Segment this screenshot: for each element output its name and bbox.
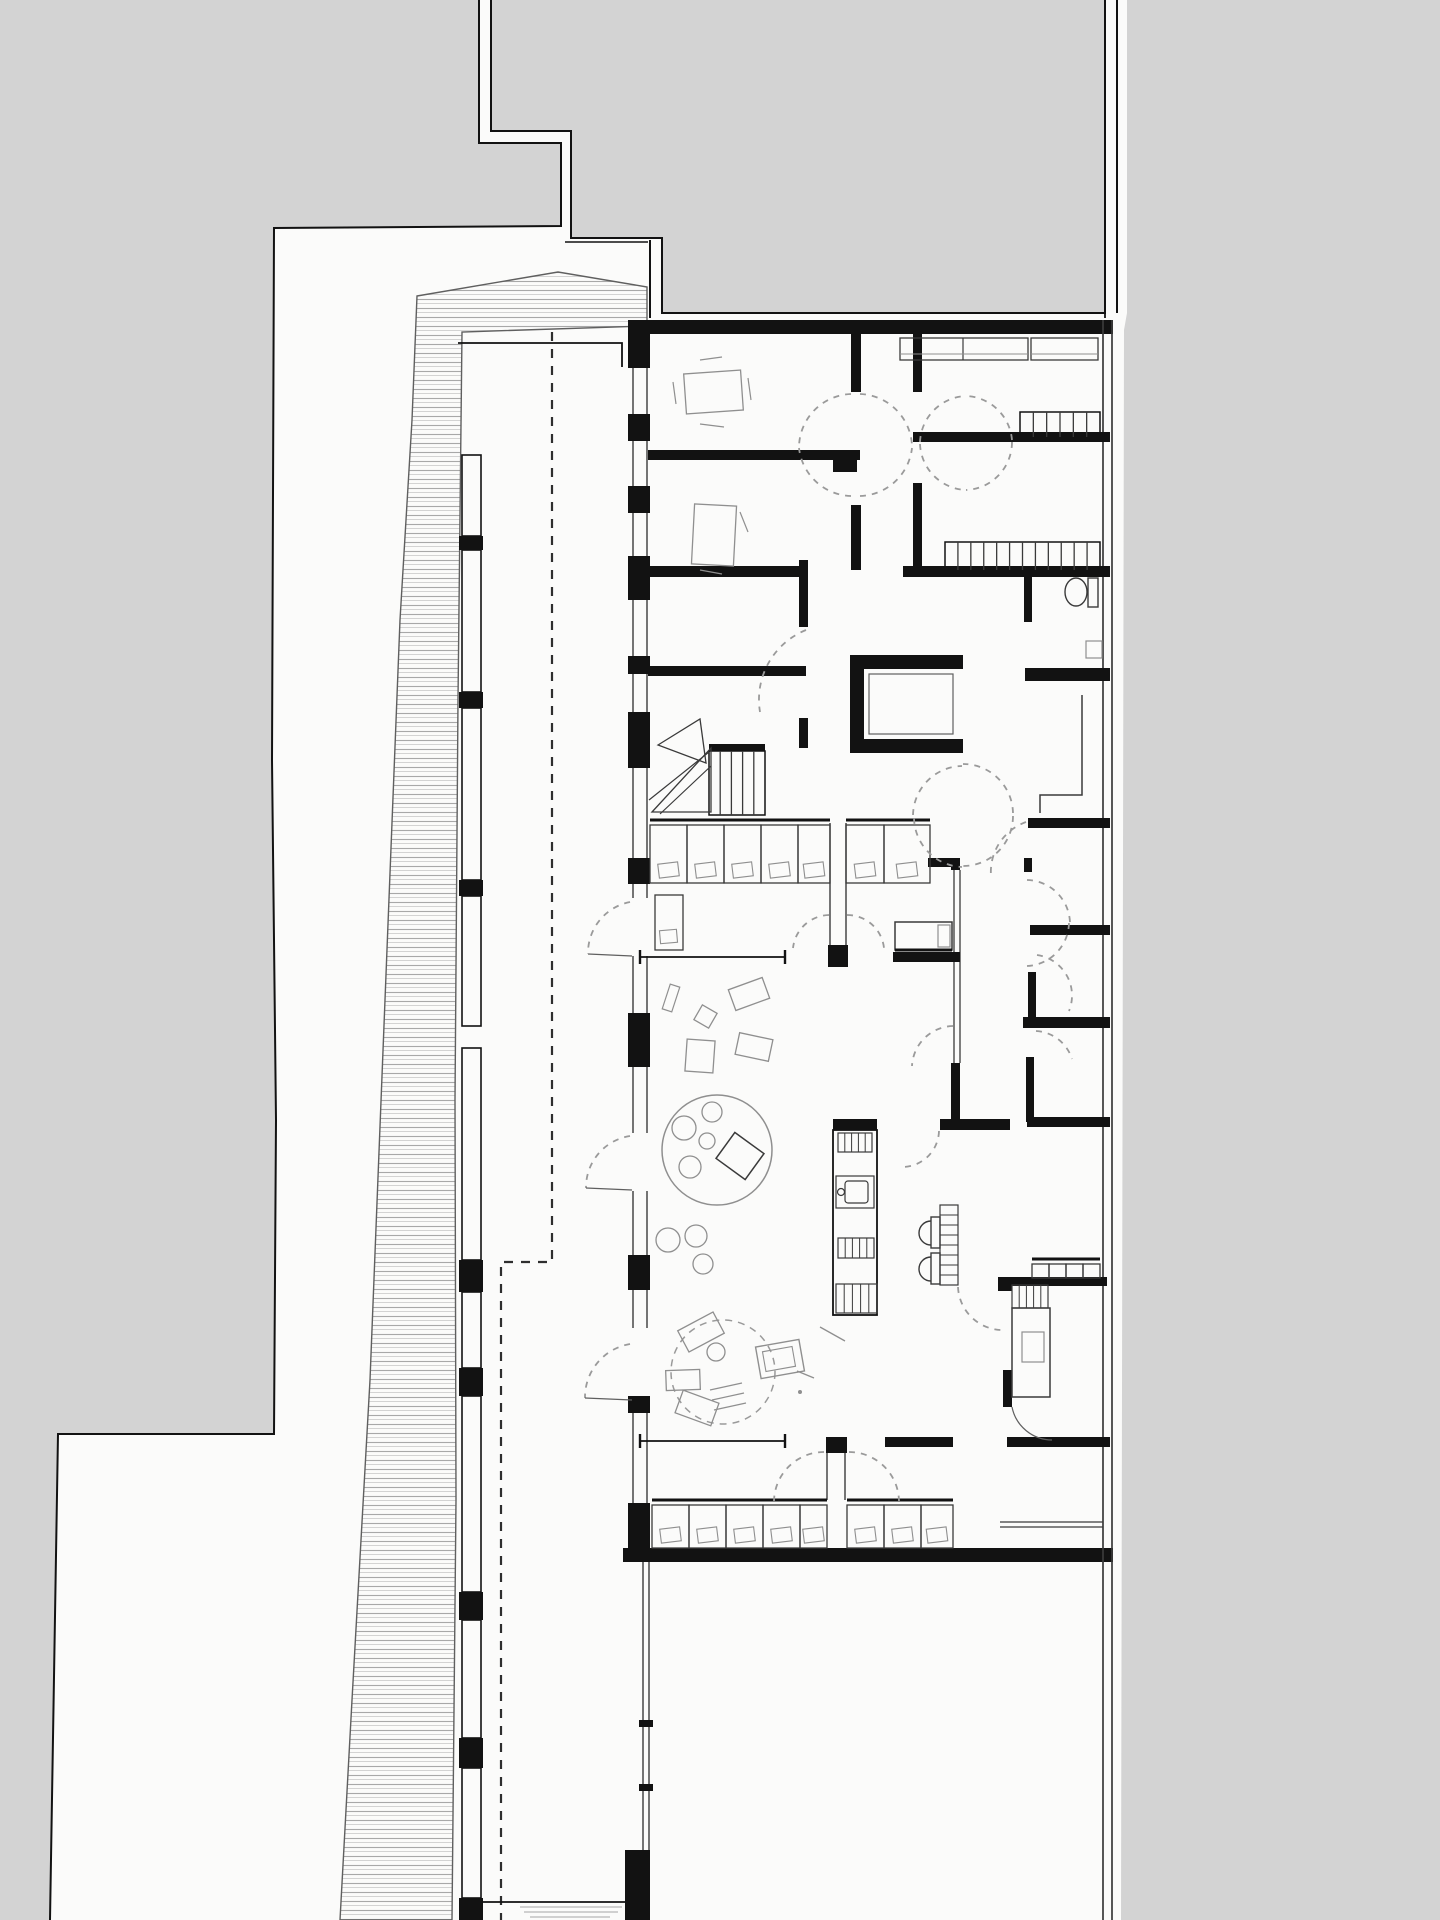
beanbag [693, 1254, 713, 1274]
chair-tick [740, 512, 748, 532]
layer-stairs [649, 412, 1100, 815]
door-swing [1027, 880, 1070, 924]
retaining-wall-post [459, 692, 483, 708]
locker-row-upper-mat [732, 862, 754, 878]
cubby-row-small-cubby [1066, 1264, 1083, 1278]
toilet-bowl [919, 1257, 931, 1281]
locker-row-upper-mat [695, 862, 717, 878]
retaining-wall-segment [462, 896, 481, 1026]
play-mat [678, 1312, 725, 1352]
retaining-wall-post [459, 1738, 483, 1768]
locker-row-lower-mat [892, 1527, 914, 1543]
door-post [828, 945, 848, 967]
wall [833, 1119, 877, 1130]
stair-entry-plate [709, 744, 765, 751]
toy-stick [820, 1327, 845, 1341]
retaining-wall-post [459, 1898, 483, 1920]
wall [1025, 668, 1110, 681]
play-mat [694, 1005, 717, 1028]
south-yard-wall-tick [639, 1720, 653, 1727]
west-wall-pier [628, 1013, 650, 1067]
west-wall-pier [628, 656, 650, 674]
sink-basin [845, 1181, 868, 1203]
retaining-wall-post [459, 1592, 483, 1620]
shelf-rack [838, 1238, 874, 1258]
west-wall-pier [628, 858, 650, 884]
locker-row-upper-cubby [650, 825, 687, 883]
wall [1023, 1017, 1110, 1028]
door-leaf [585, 1398, 632, 1400]
beanbag [685, 1225, 707, 1247]
wall [1028, 818, 1110, 828]
drainer-rack [838, 1133, 872, 1152]
crib [655, 895, 683, 950]
locker-row-upper-mat [658, 862, 680, 878]
cubby-row-small-cubby [1032, 1264, 1049, 1278]
retaining-wall-post [459, 880, 483, 896]
layer-context-parcels [0, 0, 1440, 1920]
wall [1030, 925, 1110, 935]
door-leaf [586, 1188, 632, 1190]
play-wedge [662, 984, 680, 1012]
chair-tick [700, 357, 722, 360]
wall [928, 858, 960, 867]
desk-shelf [1012, 1285, 1048, 1308]
west-wall-pier [628, 1503, 650, 1548]
duct-closet [1040, 695, 1082, 813]
wall [648, 566, 806, 577]
door-swing [586, 1136, 630, 1188]
west-wall-pier [628, 320, 650, 368]
locker-row-upper-cubby [846, 825, 884, 883]
wall-nub [998, 1277, 1012, 1291]
wall [851, 334, 861, 392]
kitchen-counter [833, 1130, 877, 1315]
chair-tick [748, 378, 751, 400]
chair [1022, 1332, 1044, 1362]
terrace-edge-line [458, 343, 622, 367]
locker-row-upper-cubby [761, 825, 798, 883]
stool [679, 1156, 701, 1178]
retaining-wall-segment [462, 550, 481, 692]
toy-stick [797, 1371, 814, 1378]
wall [893, 952, 960, 962]
south-yard-wall-tick [639, 1784, 653, 1791]
wall [799, 718, 808, 748]
desk [684, 370, 744, 414]
locker-row-lower-mat [660, 1527, 682, 1543]
play-mat [675, 1390, 719, 1426]
neighbor-parcel-right [1121, 0, 1440, 1920]
exterior-wall-north [630, 320, 1113, 334]
play-table-top [762, 1347, 795, 1372]
toilet-tank [1088, 578, 1098, 607]
property-dashed-line [501, 332, 552, 1920]
locker-row-lower-mat [771, 1527, 793, 1543]
wall [851, 505, 861, 570]
bed [895, 922, 952, 950]
bed-pillow [938, 925, 950, 947]
west-wall-pier [628, 1255, 650, 1290]
locker-row-upper-cubby [724, 825, 761, 883]
wall [940, 1119, 1010, 1130]
beanbag [656, 1228, 680, 1252]
play-mat [685, 1039, 715, 1073]
door-swing [963, 816, 1013, 866]
wall [903, 566, 1110, 577]
door-swing [920, 444, 966, 490]
wall [1028, 972, 1036, 1018]
retaining-wall-segment [462, 1292, 481, 1368]
door-swing [847, 915, 884, 948]
chair-tick [700, 424, 724, 427]
door-swing [588, 902, 630, 954]
door-swing [860, 448, 912, 496]
door-swing [966, 442, 1012, 490]
door-post [826, 1437, 847, 1453]
wc-partition [1024, 577, 1032, 622]
stool [672, 1116, 696, 1140]
wall [1026, 1057, 1034, 1122]
stool [699, 1133, 715, 1149]
retaining-wall-post [459, 536, 483, 550]
door-swing [849, 1452, 899, 1501]
locker-row-lower-mat [855, 1527, 877, 1543]
crib-mattress [659, 929, 677, 943]
shelf-rack [836, 1284, 877, 1313]
sloped-bank-hatch [340, 272, 647, 1920]
neighbor-parcel-top [491, 0, 1105, 313]
wall [648, 450, 860, 460]
wardrobe [1031, 338, 1098, 360]
west-door-opening [628, 1133, 650, 1191]
retaining-wall-segment [462, 1396, 481, 1592]
cubby-row-small-cubby [1049, 1264, 1066, 1278]
wall [648, 666, 806, 676]
locker-row-upper-mat [896, 862, 918, 878]
stool [707, 1343, 725, 1361]
south-yard-wall-pier [625, 1850, 650, 1920]
retaining-wall-segment [462, 1620, 481, 1738]
stair-arrow-fold [658, 719, 706, 763]
toilet-tank [931, 1253, 940, 1284]
locker-row-lower-mat [734, 1527, 756, 1543]
wall [913, 334, 922, 392]
locker-row-upper-mat [854, 862, 876, 878]
sink-tap [838, 1189, 845, 1196]
door-swing [793, 915, 829, 948]
door-swing-solid [1012, 1407, 1052, 1440]
door-swing [774, 1452, 824, 1501]
retaining-wall-segment [462, 1768, 481, 1898]
locker-row-lower-mat [803, 1527, 825, 1543]
stair-fold-line [660, 766, 711, 814]
locker-row-upper-mat [803, 862, 825, 878]
wall [885, 1437, 953, 1447]
retaining-wall-segment [462, 455, 481, 536]
door-leaf [588, 954, 632, 956]
layer-interior-walls [640, 334, 1110, 1527]
west-wall-pier [628, 556, 650, 600]
play-mat [728, 978, 769, 1011]
door-swing [903, 1131, 939, 1167]
mat-stripe [710, 1383, 742, 1390]
toilet-bowl [1065, 578, 1087, 606]
door-jamb [1024, 858, 1032, 872]
wall [1007, 1437, 1110, 1447]
retaining-wall-segment [462, 708, 481, 880]
door-swing [585, 1344, 630, 1398]
locker-row-upper-cubby [687, 825, 724, 883]
wall-nub [833, 460, 857, 472]
wall [799, 560, 808, 627]
high-chair [716, 1132, 764, 1179]
locker-row-upper-mat [769, 862, 791, 878]
west-wall-pier [628, 1396, 650, 1413]
stair-entry-run [709, 751, 765, 815]
round-table [662, 1095, 772, 1205]
chair-tick [673, 382, 676, 404]
toilet-tank [931, 1217, 940, 1248]
locker-row-upper-cubby [884, 825, 930, 883]
locker-row-upper-cubby [798, 825, 830, 883]
play-mat [735, 1033, 773, 1062]
door-swing [1036, 1031, 1072, 1059]
wall [1003, 1370, 1012, 1407]
door-swing [860, 394, 912, 446]
elevator-cab [869, 674, 953, 734]
west-wall-pier [628, 414, 650, 441]
west-door-opening [628, 1328, 650, 1398]
washbasin [1086, 641, 1102, 658]
wall [951, 1063, 960, 1127]
toy-dot [798, 1390, 802, 1394]
locker-row-lower-mat [697, 1527, 719, 1543]
play-table [756, 1339, 805, 1378]
door-swing [958, 1287, 1001, 1330]
retaining-wall-post [459, 1368, 483, 1396]
floor-plan-drawing [0, 0, 1440, 1920]
cubby-row-small-cubby [1083, 1264, 1100, 1278]
retaining-wall-segment [462, 1048, 481, 1260]
stool [702, 1102, 722, 1122]
west-wall-pier [628, 712, 650, 768]
door-swing [913, 766, 962, 815]
door-swing [963, 764, 1013, 813]
exterior-wall-south [623, 1548, 1113, 1562]
layer-landscape [340, 272, 647, 1920]
west-door-opening [628, 898, 650, 956]
door-swing [799, 394, 851, 446]
toilet-bowl [919, 1221, 931, 1245]
west-wall-pier [628, 486, 650, 513]
wall [1027, 1117, 1110, 1127]
desk [691, 504, 736, 566]
mat-stripe [712, 1393, 744, 1400]
retaining-wall-post [459, 1260, 483, 1292]
door-swing [991, 822, 1026, 876]
plan-stage [0, 0, 1440, 1920]
locker-row-lower-mat [926, 1527, 948, 1543]
wall [913, 483, 922, 573]
elevator-shaft [850, 655, 963, 753]
door-swing [912, 1026, 953, 1066]
